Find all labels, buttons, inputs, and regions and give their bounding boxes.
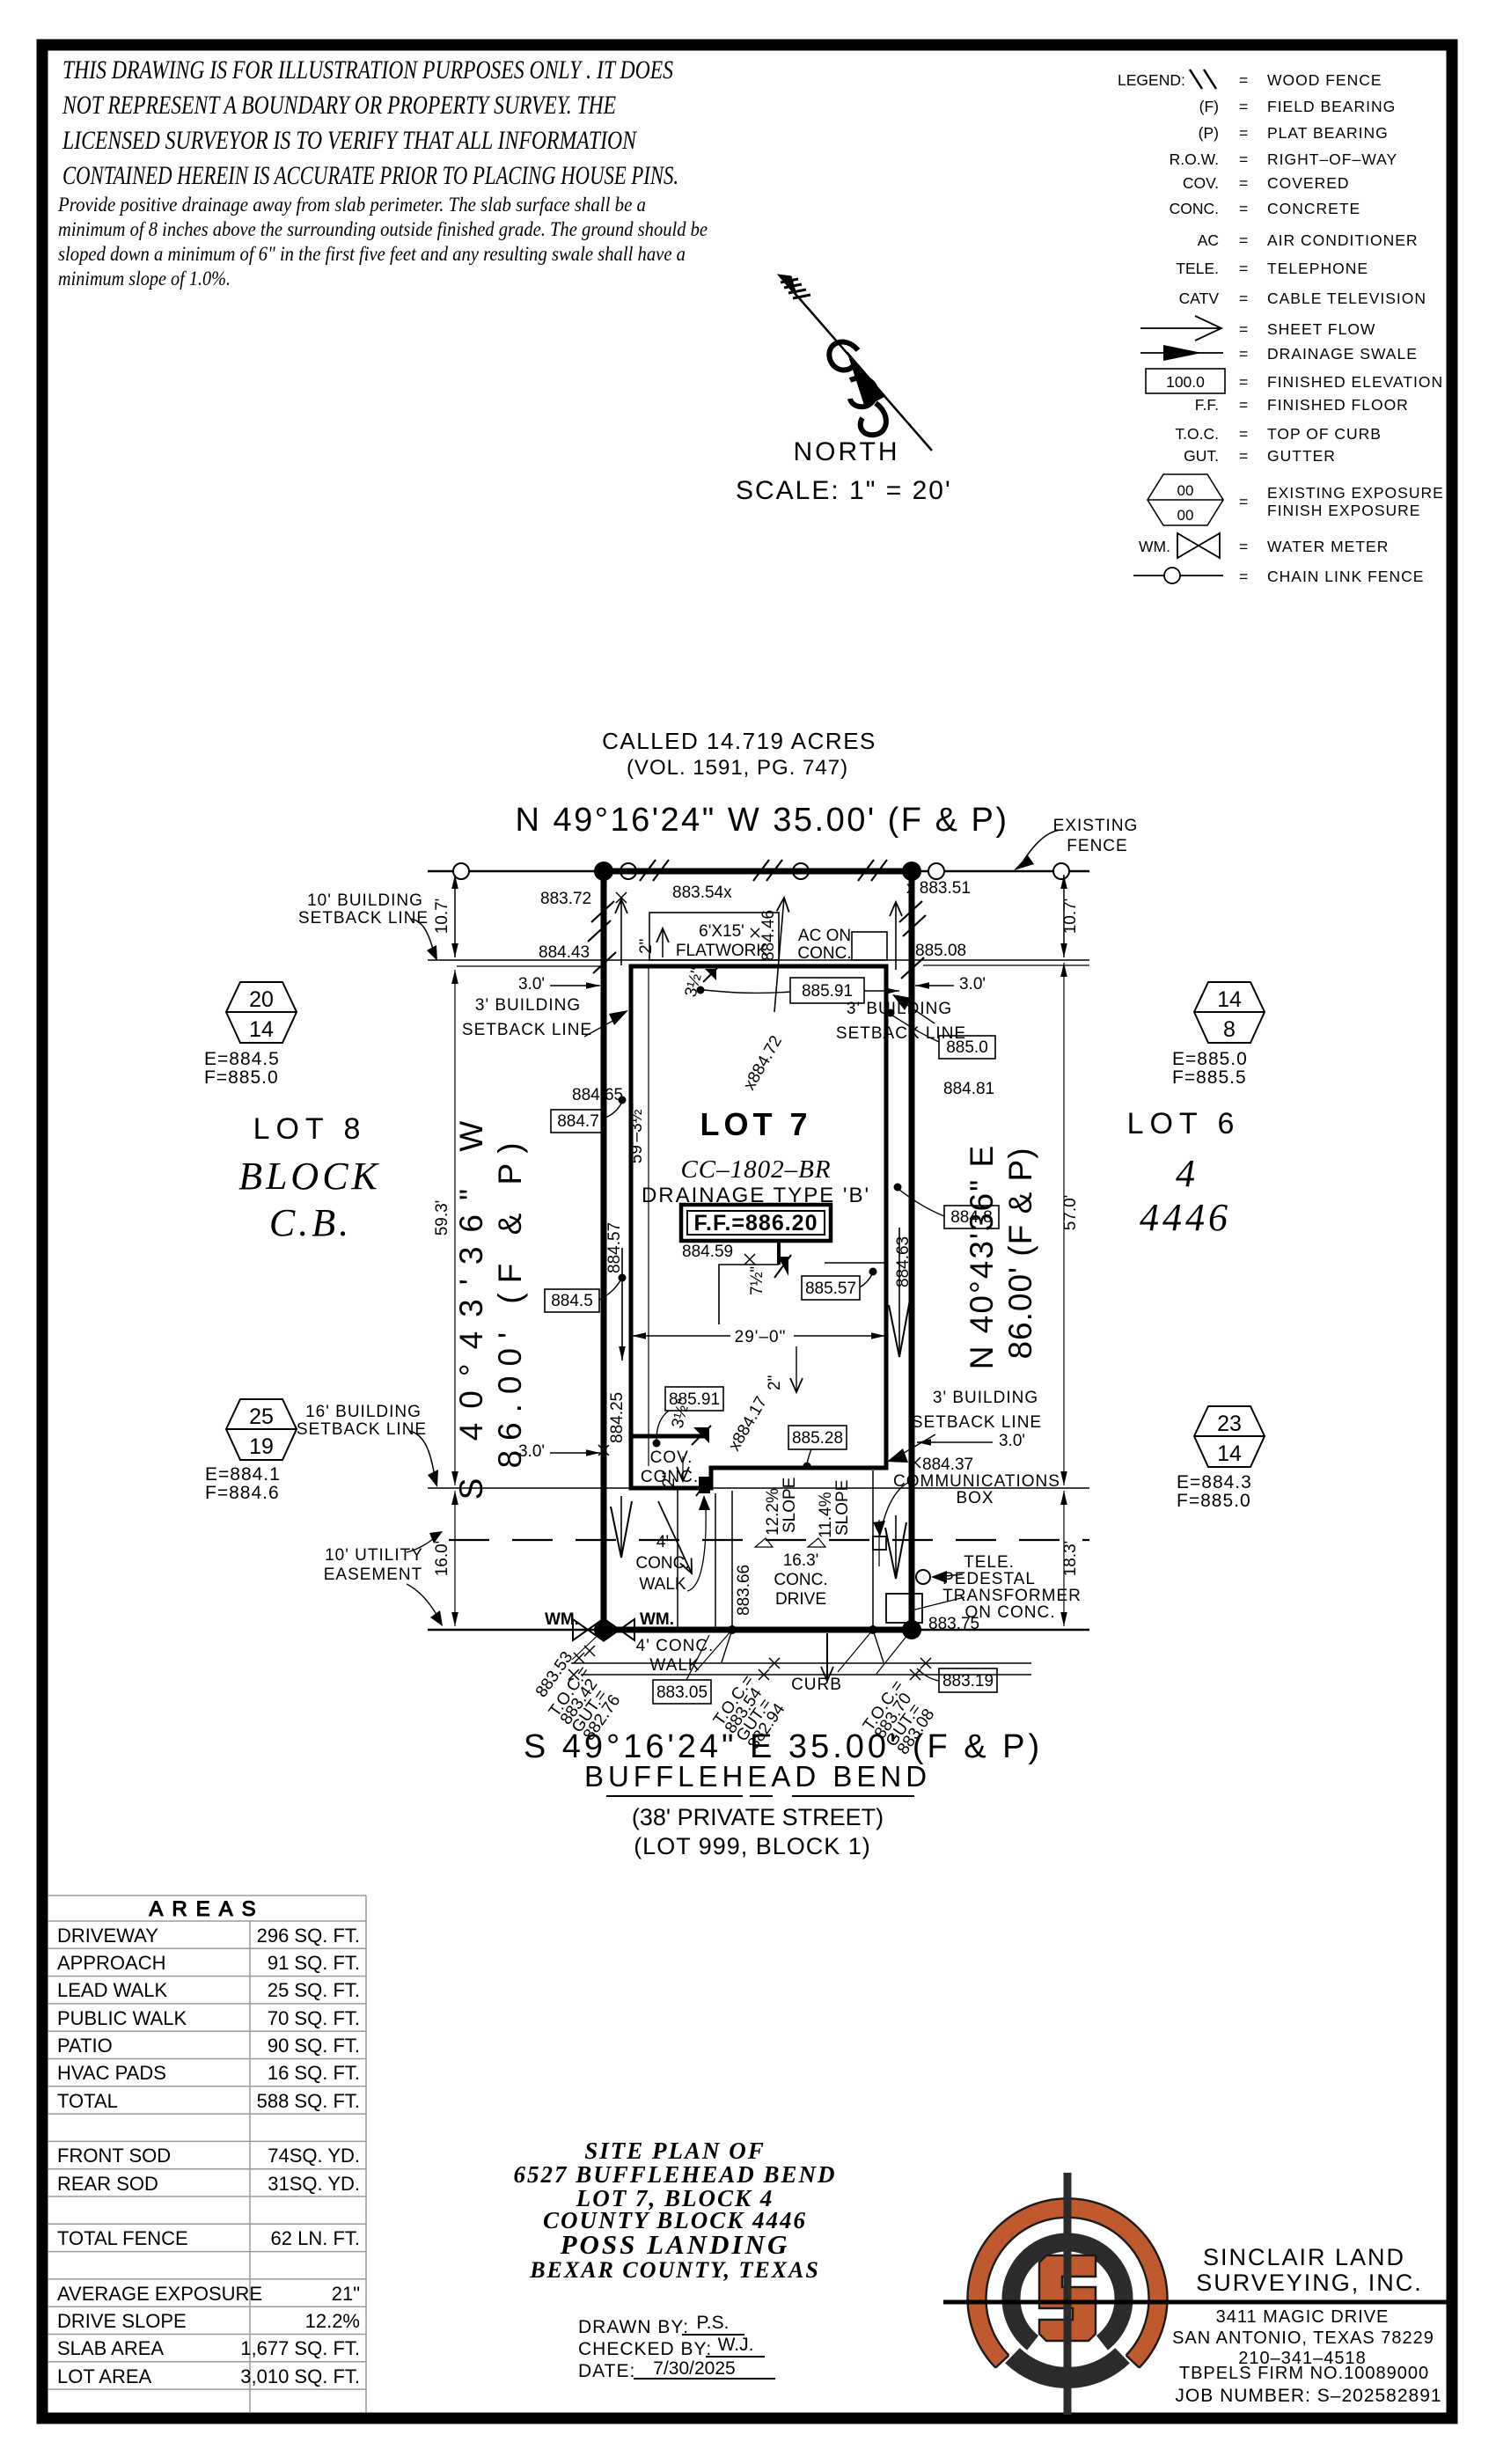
svg-text:sloped down a minimum of 6" in: sloped down a minimum of 6" in the first… [58,243,686,265]
svg-text:885.57: 885.57 [805,1280,856,1298]
svg-text:PLAT BEARING: PLAT BEARING [1267,124,1389,142]
svg-text:885.28: 885.28 [792,1429,843,1448]
svg-text:=: = [1239,447,1248,465]
svg-text:COMMUNICATIONS: COMMUNICATIONS [893,1472,1060,1491]
svg-text:(VOL. 1591, PG. 747): (VOL. 1591, PG. 747) [627,756,848,780]
svg-text:00: 00 [1177,507,1194,524]
svg-text:29'–0": 29'–0" [735,1328,787,1346]
svg-text:CATV: CATV [1179,290,1220,307]
svg-text:11.4%: 11.4% [817,1492,835,1538]
svg-text:CONC.: CONC. [774,1571,827,1589]
svg-text:4' CONC.: 4' CONC. [636,1637,715,1655]
svg-text:BLOCK: BLOCK [238,1155,381,1198]
svg-text:CC–1802–BR: CC–1802–BR [680,1155,831,1184]
svg-text:SCALE: 1" = 20': SCALE: 1" = 20' [736,476,952,505]
svg-text:FIELD BEARING: FIELD BEARING [1267,98,1396,115]
svg-text:DRIVE: DRIVE [775,1590,826,1609]
svg-text:884.37: 884.37 [922,1456,973,1474]
svg-text:DATE:: DATE: [578,2361,635,2381]
svg-text:LEGEND:: LEGEND: [1118,71,1185,89]
svg-text:SETBACK LINE: SETBACK LINE [297,1420,427,1439]
svg-text:LICENSED SURVEYOR IS TO VERIFY: LICENSED SURVEYOR IS TO VERIFY THAT ALL … [62,126,637,155]
svg-text:=: = [1239,396,1248,414]
svg-text:COV.: COV. [650,1448,693,1467]
svg-text:62 LN. FT.: 62 LN. FT. [271,2227,360,2249]
svg-text:WM.: WM. [1139,538,1170,555]
svg-text:883.05: 883.05 [656,1683,708,1702]
svg-text:7/30/2025: 7/30/2025 [653,2358,735,2379]
svg-text:F=885.0: F=885.0 [1177,1491,1251,1511]
svg-text:91 SQ. FT.: 91 SQ. FT. [268,1952,360,1974]
svg-text:SETBACK LINE: SETBACK LINE [836,1024,966,1043]
svg-text:RIGHT–OF–WAY: RIGHT–OF–WAY [1267,150,1397,168]
svg-text:SITE PLAN OF: SITE PLAN OF [584,2138,766,2164]
svg-text:F=885.5: F=885.5 [1172,1067,1247,1088]
svg-text:TOTAL: TOTAL [57,2090,118,2112]
svg-text:PEDESTAL: PEDESTAL [942,1570,1036,1588]
svg-text:14: 14 [1217,1441,1242,1466]
svg-text:EXISTING EXPOSURE: EXISTING EXPOSURE [1267,484,1444,502]
svg-text:=: = [1239,373,1248,391]
svg-text:884.46: 884.46 [759,910,778,961]
svg-text:57.0': 57.0' [1061,1195,1080,1231]
svg-text:F.F.=886.20: F.F.=886.20 [694,1211,818,1236]
svg-text:Provide positive drainage away: Provide positive drainage away from slab… [57,194,646,216]
svg-text:F=885.0: F=885.0 [204,1067,279,1088]
svg-text:CONCRETE: CONCRETE [1267,200,1360,217]
svg-text:3.0': 3.0' [518,975,545,994]
svg-text:W.J.: W.J. [718,2335,754,2355]
svg-text:CONC.: CONC. [635,1554,689,1573]
svg-text:POSS LANDING: POSS LANDING [560,2229,790,2260]
svg-text:16' BUILDING: 16' BUILDING [305,1403,422,1421]
svg-text:x 883.51: x 883.51 [906,879,971,898]
svg-text:DRAINAGE SWALE: DRAINAGE SWALE [1267,345,1418,363]
svg-text:=: = [1239,71,1248,89]
svg-text:19: 19 [249,1434,274,1459]
svg-text:GUTTER: GUTTER [1267,447,1336,465]
svg-text:884.43: 884.43 [539,943,590,962]
svg-text:10.7': 10.7' [433,898,451,935]
svg-text:=: = [1239,290,1248,307]
svg-text:NORTH: NORTH [793,437,899,466]
svg-text:FRONT SOD: FRONT SOD [57,2145,171,2167]
svg-text:=: = [1239,320,1248,338]
svg-text:59.3': 59.3' [433,1200,451,1236]
svg-text:SETBACK LINE: SETBACK LINE [462,1021,592,1039]
svg-text:2": 2" [637,939,656,954]
svg-text:4': 4' [656,1533,669,1551]
svg-text:WOOD FENCE: WOOD FENCE [1267,71,1382,89]
svg-text:DRAWN BY:: DRAWN BY: [578,2317,689,2337]
svg-text:10.7': 10.7' [1061,898,1080,935]
svg-text:2": 2" [766,1375,784,1390]
svg-text:=: = [1239,150,1248,168]
svg-text:=: = [1239,174,1248,192]
svg-text:WALK: WALK [639,1575,686,1594]
svg-text:CURB: CURB [791,1676,842,1694]
svg-text:10' UTILITY: 10' UTILITY [325,1546,423,1565]
svg-text:N 40°43'36" E: N 40°43'36" E [964,1144,1000,1369]
svg-text:E=885.0: E=885.0 [1172,1049,1248,1069]
svg-text:90 SQ. FT.: 90 SQ. FT. [268,2035,360,2057]
svg-text:C.B.: C.B. [269,1201,352,1244]
svg-text:SAN ANTONIO, TEXAS 78229: SAN ANTONIO, TEXAS 78229 [1172,2328,1434,2348]
svg-text:=: = [1239,98,1248,115]
svg-text:AC: AC [1198,231,1219,249]
svg-text:=: = [1239,493,1248,510]
svg-text:FENCE: FENCE [1067,837,1127,855]
svg-text:=: = [1239,260,1248,277]
svg-text:20: 20 [249,987,274,1012]
svg-text:CONC.: CONC. [1170,200,1219,217]
svg-text:DRIVEWAY: DRIVEWAY [57,1925,158,1947]
svg-text:TELEPHONE: TELEPHONE [1267,260,1368,277]
svg-text:10' BUILDING: 10' BUILDING [307,891,423,910]
svg-text:P.S.: P.S. [697,2313,730,2333]
svg-text:25: 25 [249,1404,274,1429]
svg-text:CHECKED BY:: CHECKED BY: [578,2339,712,2359]
svg-text:=: = [1239,231,1248,249]
svg-text:884.25: 884.25 [608,1392,627,1443]
svg-text:884.81: 884.81 [943,1080,994,1098]
svg-text:16.0': 16.0' [433,1541,451,1577]
svg-text:PUBLIC WALK: PUBLIC WALK [57,2007,187,2029]
svg-text:SETBACK LINE: SETBACK LINE [912,1413,1042,1432]
svg-text:SLAB AREA: SLAB AREA [57,2337,164,2359]
svg-text:884.59: 884.59 [682,1243,733,1261]
svg-text:N 49°16'24" W 35.00' (F &: N 49°16'24" W 35.00' (F & P) [516,802,1009,839]
svg-text:3,010 SQ. FT.: 3,010 SQ. FT. [240,2365,360,2387]
svg-text:18.3': 18.3' [1061,1541,1080,1577]
svg-text:7½": 7½" [748,1266,766,1295]
svg-text:884.5: 884.5 [551,1292,593,1310]
svg-text:BOX: BOX [956,1489,994,1507]
svg-text:=: = [1239,200,1248,217]
svg-text:R.O.W.: R.O.W. [1170,150,1219,168]
svg-text:21": 21" [332,2283,360,2305]
svg-text:F.F.: F.F. [1195,396,1219,414]
svg-text:3' BUILDING: 3' BUILDING [475,996,581,1015]
svg-text:(38' PRIVATE STREET): (38' PRIVATE STREET) [632,1804,884,1830]
svg-text:12.2%: 12.2% [305,2310,360,2332]
svg-text:3411 MAGIC DRIVE: 3411 MAGIC DRIVE [1216,2307,1390,2327]
svg-text:86.00' (F & P): 86.00' (F & P) [1002,1147,1038,1359]
svg-text:AREAS: AREAS [149,1897,264,1921]
svg-text:100.0: 100.0 [1166,373,1205,391]
svg-text:SINCLAIR LAND: SINCLAIR LAND [1203,2244,1405,2270]
svg-text:JOB NUMBER: S–202582891: JOB NUMBER: S–202582891 [1175,2386,1441,2406]
svg-text:16 SQ. FT.: 16 SQ. FT. [268,2062,360,2084]
svg-text:COVERED: COVERED [1267,174,1350,192]
svg-text:31SQ. YD.: 31SQ. YD. [268,2173,360,2195]
svg-text:SLOPE: SLOPE [833,1480,852,1536]
svg-text:16.3': 16.3' [783,1551,819,1570]
svg-text:14: 14 [249,1017,274,1042]
svg-text:SLOPE: SLOPE [781,1478,799,1533]
svg-text:884.63: 884.63 [894,1236,913,1287]
svg-text:WALK: WALK [649,1656,700,1675]
svg-text:REAR SOD: REAR SOD [57,2173,158,2195]
svg-text:AC ON: AC ON [798,927,851,945]
svg-text:FINISH EXPOSURE: FINISH EXPOSURE [1267,502,1420,519]
svg-text:74SQ. YD.: 74SQ. YD. [268,2145,360,2167]
svg-text:=: = [1239,345,1248,363]
svg-text:883.66: 883.66 [735,1565,753,1616]
svg-text:HVAC PADS: HVAC PADS [57,2062,166,2084]
svg-text:AVERAGE EXPOSURE: AVERAGE EXPOSURE [57,2283,262,2305]
svg-text:minimum of 8 inches above the: minimum of 8 inches above the surroundin… [58,218,708,240]
svg-text:WATER METER: WATER METER [1267,538,1389,555]
svg-text:CABLE TELEVISION: CABLE TELEVISION [1267,290,1426,307]
svg-text:884.7: 884.7 [557,1112,599,1131]
svg-text:F=884.6: F=884.6 [205,1483,280,1503]
svg-text:SHEET FLOW: SHEET FLOW [1267,320,1375,338]
svg-text:BEXAR COUNTY, TEXAS: BEXAR COUNTY, TEXAS [529,2257,820,2283]
svg-text:CHAIN LINK FENCE: CHAIN LINK FENCE [1267,568,1424,585]
svg-text:70 SQ. FT.: 70 SQ. FT. [268,2007,360,2029]
svg-text:TOTAL FENCE: TOTAL FENCE [57,2227,188,2249]
svg-text:TOP OF CURB: TOP OF CURB [1267,425,1382,443]
svg-text:T.O.C.: T.O.C. [1175,425,1219,443]
svg-text:APPROACH: APPROACH [57,1952,165,1974]
svg-text:WM.: WM. [640,1610,674,1629]
svg-text:S 40°43'36" W: S 40°43'36" W [453,1107,489,1500]
svg-text:AIR CONDITIONER: AIR CONDITIONER [1267,231,1419,249]
svg-text:EXISTING: EXISTING [1053,817,1139,835]
svg-text:=: = [1239,538,1248,555]
svg-text:296 SQ. FT.: 296 SQ. FT. [257,1925,360,1947]
svg-text:TELE.: TELE. [964,1553,1015,1572]
svg-text:(P): (P) [1199,124,1219,142]
svg-text:CALLED 14.719 ACRES: CALLED 14.719 ACRES [602,728,876,754]
svg-text:86.00' (F & P): 86.00' (F & P) [492,1133,528,1468]
svg-text:2": 2" [660,1472,678,1487]
svg-text:6'X15': 6'X15' [699,922,744,941]
svg-text:884.57: 884.57 [605,1222,624,1273]
svg-text:E=884.3: E=884.3 [1177,1472,1252,1492]
svg-text:CONTAINED HEREIN IS ACCURATE P: CONTAINED HEREIN IS ACCURATE PRIOR TO PL… [62,161,678,190]
svg-text:DRIVE SLOPE: DRIVE SLOPE [57,2310,187,2332]
svg-text:LOT 8: LOT 8 [253,1112,367,1146]
svg-text:(LOT 999, BLOCK 1): (LOT 999, BLOCK 1) [634,1833,871,1859]
svg-text:14: 14 [1217,987,1242,1012]
svg-text:3' BUILDING: 3' BUILDING [933,1389,1038,1407]
svg-text:COV.: COV. [1183,174,1219,192]
svg-text:8: 8 [1223,1017,1236,1042]
svg-text:12.2%: 12.2% [764,1488,782,1536]
svg-text:TELE.: TELE. [1176,260,1219,277]
svg-text:=: = [1239,568,1248,585]
svg-text:00: 00 [1177,482,1194,499]
svg-text:LEAD WALK: LEAD WALK [57,1979,167,2001]
svg-text:THIS DRAWING IS FOR ILLUSTRATI: THIS DRAWING IS FOR ILLUSTRATION PURPOSE… [62,55,673,84]
svg-text:E=884.5: E=884.5 [204,1049,280,1069]
svg-text:FINISHED FLOOR: FINISHED FLOOR [1267,396,1409,414]
svg-text:885.91: 885.91 [802,982,853,1001]
svg-text:SURVEYING, INC.: SURVEYING, INC. [1196,2270,1423,2296]
svg-text:CONC.: CONC. [797,944,851,963]
svg-text:=: = [1239,124,1248,142]
svg-text:23: 23 [1217,1412,1242,1436]
svg-text:883.72: 883.72 [540,890,591,908]
svg-text:25 SQ. FT.: 25 SQ. FT. [268,1979,360,2001]
svg-text:GUT.: GUT. [1184,447,1219,465]
svg-text:3.0': 3.0' [999,1432,1025,1450]
svg-text:EASEMENT: EASEMENT [324,1566,423,1584]
svg-text:884.65: 884.65 [572,1086,623,1104]
svg-text:SETBACK LINE: SETBACK LINE [298,909,429,928]
svg-text:4: 4 [1176,1152,1199,1195]
svg-text:LOT AREA: LOT AREA [57,2365,152,2387]
svg-text:883.19: 883.19 [942,1672,994,1690]
svg-text:TBPELS FIRM NO.10089000: TBPELS FIRM NO.10089000 [1179,2364,1429,2383]
svg-text:=: = [1239,425,1248,443]
svg-text:FINISHED ELEVATION: FINISHED ELEVATION [1267,373,1443,391]
svg-text:4446: 4446 [1140,1196,1231,1239]
svg-text:1,677 SQ. FT.: 1,677 SQ. FT. [240,2337,360,2359]
svg-text:59'–3½": 59'–3½" [627,1104,646,1164]
svg-text:LOT 7: LOT 7 [700,1106,811,1142]
svg-text:LOT 6: LOT 6 [1127,1107,1241,1140]
svg-text:883.54x: 883.54x [672,884,732,902]
svg-text:NOT REPRESENT A BOUNDARY OR PR: NOT REPRESENT A BOUNDARY OR PROPERTY SUR… [62,91,616,120]
svg-text:6527 BUFFLEHEAD BEND: 6527 BUFFLEHEAD BEND [513,2161,836,2188]
svg-text:3.0': 3.0' [959,975,986,994]
svg-text:PATIO: PATIO [57,2035,113,2057]
svg-text:(F): (F) [1199,98,1219,115]
svg-text:BUFFLEHEAD BEND: BUFFLEHEAD BEND [584,1760,931,1793]
svg-text:TRANSFORMER: TRANSFORMER [942,1587,1082,1605]
svg-text:FLATWORK: FLATWORK [676,942,767,960]
svg-text:minimum slope of 1.0%.: minimum slope of 1.0%. [58,268,231,290]
svg-text:588 SQ. FT.: 588 SQ. FT. [257,2090,360,2112]
svg-text:E=884.1: E=884.1 [205,1464,281,1485]
svg-text:885.08: 885.08 [915,942,966,960]
